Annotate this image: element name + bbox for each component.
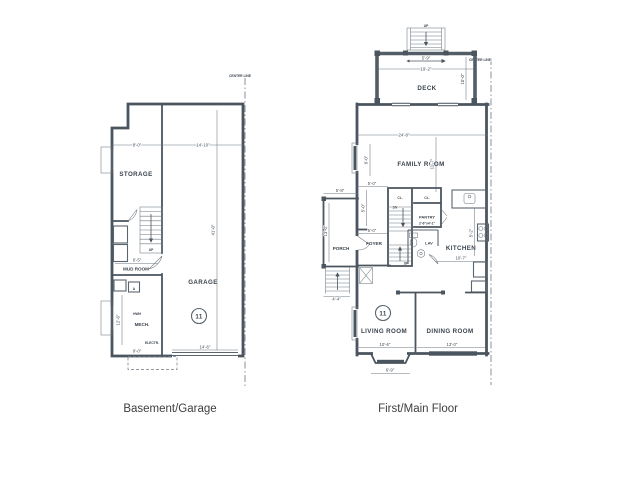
washer-box xyxy=(114,226,128,243)
stairs-down-label: DN xyxy=(393,206,398,210)
basement-marker: 11 xyxy=(195,313,202,320)
dim-deck-depth: 10'-0" xyxy=(460,73,465,84)
kitchen-counter xyxy=(452,190,486,208)
basement-plan: CENTER LINE 8'-0" 14'-10" STORAGE UP 6'-… xyxy=(101,74,252,415)
closet-right-label: CL. xyxy=(424,196,429,200)
dim-mudroom-width: 6'-5" xyxy=(133,258,142,263)
dim-family-depth: 11'-7" xyxy=(430,158,435,169)
dim-living-width: 10'-6" xyxy=(380,342,391,347)
lav-sink-icon xyxy=(417,250,425,258)
living-room-label: LIVING ROOM xyxy=(361,328,407,335)
family-window xyxy=(354,146,357,170)
deck-label: DECK xyxy=(417,85,436,92)
rear-door-opening-1 xyxy=(392,102,410,108)
bay-opening xyxy=(373,352,407,357)
opening-post-2 xyxy=(441,291,445,295)
porch-walls xyxy=(324,199,359,267)
dim-pantry: 2'-6"x4'-1" xyxy=(419,222,435,226)
dining-window xyxy=(429,351,477,355)
basement-stairs-up-label: UP xyxy=(149,248,154,252)
porch-label: PORCH xyxy=(333,246,350,251)
storage-label: STORAGE xyxy=(119,171,152,178)
dim-deck-stair-width: 5'-9" xyxy=(422,56,431,61)
basement-center-line-label: CENTER LINE xyxy=(229,74,252,78)
dim-porch-depth: 13'-0" xyxy=(323,225,328,236)
dim-foyer-side: 5'-0" xyxy=(361,203,366,212)
dining-room-label: DINING ROOM xyxy=(426,328,473,335)
appliance-label: A xyxy=(133,287,136,291)
lav-door xyxy=(429,255,438,265)
dim-garage-door: 14'-6" xyxy=(200,345,211,350)
dim-overall-width: 24'-8" xyxy=(399,133,410,138)
toilet-tank-icon xyxy=(410,233,418,238)
dim-dining-width: 13'-0" xyxy=(447,342,458,347)
front-door-opening xyxy=(355,236,359,250)
lav-sink-drain-icon xyxy=(420,252,422,254)
pantry-label: PANTRY xyxy=(419,215,435,220)
dim-family-side: 6'-0" xyxy=(364,155,369,164)
floor-plan-sheet: CENTER LINE 8'-0" 14'-10" STORAGE UP 6'-… xyxy=(0,0,640,495)
living-window xyxy=(354,310,357,337)
water-heater-label: HWH xyxy=(133,312,141,316)
porch-post-1 xyxy=(322,197,327,202)
mech-label: MECH. xyxy=(135,322,150,327)
under-stair-closet-doors xyxy=(360,268,373,284)
opening-post-1 xyxy=(396,291,400,295)
garage-label: GARAGE xyxy=(188,279,218,286)
mudroom-door xyxy=(128,210,137,222)
dim-foyer-top: 5'-0" xyxy=(368,181,377,186)
dryer-box xyxy=(114,245,128,262)
kitchen-cabinet xyxy=(472,281,487,292)
dim-storage-width: 8'-0" xyxy=(133,143,142,148)
basement-stoop-outline xyxy=(128,357,177,370)
kitchen-label: KITCHEN xyxy=(446,245,476,252)
dim-deck-width: 19'-2" xyxy=(421,67,432,72)
main-center-line-label: CENTER LINE xyxy=(469,58,492,62)
family-room-label: FAMILY ROOM xyxy=(397,161,444,168)
dim-kitchen-side: 5'-2" xyxy=(469,228,474,237)
garage-access-door xyxy=(149,256,162,269)
dim-mech-width: 9'-0" xyxy=(133,349,142,354)
dim-porch-stairs: 4'-4" xyxy=(332,297,341,302)
dim-kitchen-width: 10'-7" xyxy=(456,256,467,261)
dim-depth: 41'-0" xyxy=(211,224,216,235)
bay-window xyxy=(377,360,404,363)
basement-caption: Basement/Garage xyxy=(123,403,216,415)
rear-door-opening-2 xyxy=(438,102,458,108)
dim-foyer-bottom: 5'-0" xyxy=(368,228,377,233)
lav-label: LAV xyxy=(425,241,433,246)
fridge-icon xyxy=(474,262,488,277)
kitchen-faucet-icon xyxy=(468,195,471,198)
main-floor-plan: CENTER LINE UP DECK 5'-9" 19'-2" 10'-0" xyxy=(322,24,492,415)
basement-exterior-wall xyxy=(112,104,243,356)
main-caption: First/Main Floor xyxy=(378,403,458,415)
furnace-box xyxy=(114,280,126,291)
dim-right-width: 14'-10" xyxy=(196,143,210,148)
floor-plan-drawing: CENTER LINE 8'-0" 14'-10" STORAGE UP 6'-… xyxy=(0,0,640,495)
dim-porch-width: 5'-8" xyxy=(336,188,345,193)
foyer-label: FOYER xyxy=(366,241,383,246)
closet-left-label: CL. xyxy=(397,196,402,200)
dim-bay-width: 6'-9" xyxy=(386,368,395,373)
main-marker: 11 xyxy=(379,310,386,317)
deck-stairs-up-label: UP xyxy=(424,24,429,28)
dim-mech-depth: 12'-6" xyxy=(116,314,121,325)
mudroom-label: MUD ROOM xyxy=(123,267,149,272)
electrical-label: ELECTR. xyxy=(145,341,159,345)
